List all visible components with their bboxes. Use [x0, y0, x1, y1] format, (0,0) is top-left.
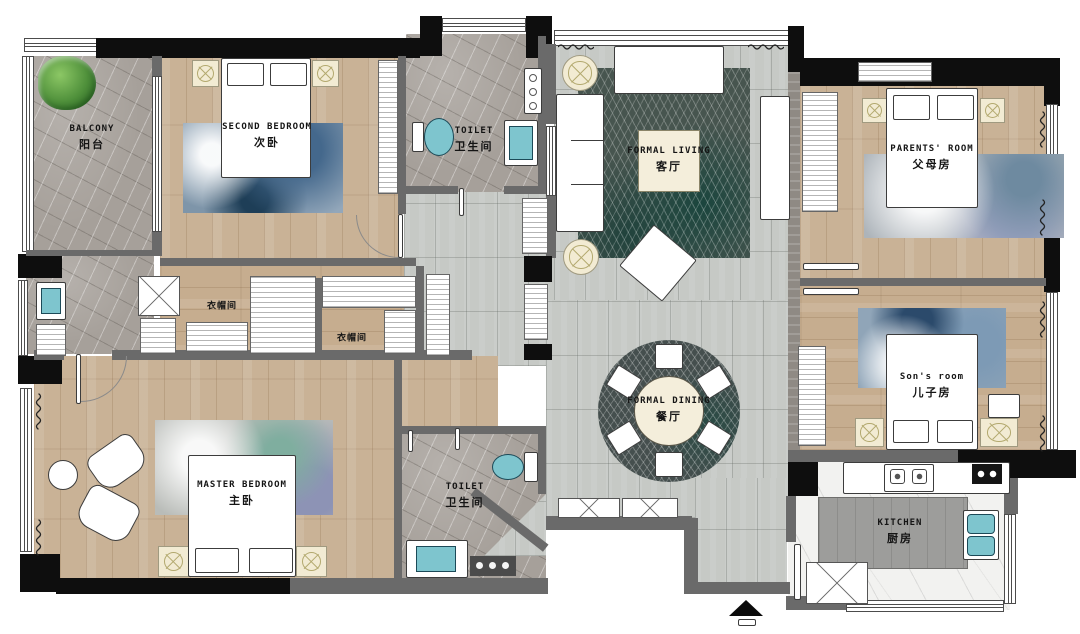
label-en: Son's room — [900, 372, 964, 382]
room-label-master-bedroom: MASTER BEDROOM 主卧 — [197, 480, 287, 508]
window — [846, 600, 1004, 612]
toilet-tank — [524, 452, 538, 482]
burner-icon — [890, 469, 905, 484]
nightstand — [980, 98, 1005, 123]
room-label-sons-room: Son's room 儿子房 — [900, 372, 964, 400]
nightstand — [855, 418, 884, 447]
pillow — [937, 95, 974, 120]
wall-segment — [416, 266, 424, 358]
curtain-icon — [1035, 302, 1054, 338]
column — [958, 450, 1030, 462]
wall-segment — [788, 450, 958, 462]
sink-icon — [416, 546, 456, 572]
label-zh: 卫生间 — [446, 494, 485, 510]
wall-segment — [26, 250, 154, 256]
label-zh: 衣帽间 — [337, 331, 367, 344]
room-label-kitchen: KITCHEN 厨房 — [878, 518, 923, 546]
wall-segment — [290, 578, 548, 594]
switch-panel — [972, 464, 1002, 484]
sink-basin-icon — [967, 514, 995, 534]
cloakroom-cabinet — [140, 318, 176, 354]
shaft — [138, 276, 180, 316]
kitchen-entry-door-leaf — [794, 544, 801, 600]
pillow — [270, 63, 307, 86]
column — [420, 16, 442, 56]
parents-room-door-leaf — [803, 263, 859, 270]
wall-segment — [152, 56, 162, 76]
label-zh: 儿子房 — [900, 384, 964, 400]
utility-sink-icon — [41, 288, 61, 314]
label-en: KITCHEN — [878, 518, 923, 528]
window — [442, 18, 526, 32]
toilet-icon — [492, 454, 524, 480]
wall-segment — [546, 516, 692, 530]
nightstand — [312, 60, 339, 87]
sons-wardrobe — [798, 346, 826, 446]
room-label-toilet-upper: TOILET 卫生间 — [455, 126, 494, 154]
column — [18, 254, 62, 278]
wall-segment — [538, 426, 546, 494]
nightstand — [192, 60, 219, 87]
sink-basin-icon — [967, 536, 995, 556]
room-label-cloakroom-right: 衣帽间 — [337, 329, 367, 344]
column — [1044, 58, 1060, 106]
pillow — [893, 420, 929, 443]
cabinet-knob — [529, 102, 537, 110]
pillow — [195, 548, 239, 573]
label-zh: 餐厅 — [627, 408, 710, 424]
nightstand — [980, 418, 1018, 447]
second-bedroom-door-leaf — [398, 214, 403, 258]
curtain-icon — [31, 520, 50, 556]
side-table — [562, 55, 598, 91]
wall-segment — [684, 518, 698, 588]
knob — [489, 562, 496, 569]
room-label-formal-living: FORMAL LIVING 客厅 — [627, 146, 710, 174]
cloakroom-wardrobe — [250, 276, 316, 354]
toilet-lower-door-leaf2 — [455, 428, 460, 450]
shoe-cabinet — [558, 498, 620, 518]
room-label-parents-room: PARENTS' ROOM 父母房 — [890, 144, 973, 172]
master-bedroom-door-leaf — [76, 354, 81, 404]
wall-segment — [786, 496, 796, 542]
window — [1004, 514, 1016, 604]
small-round-table — [48, 460, 78, 490]
label-en: FORMAL LIVING — [627, 146, 710, 156]
wall-segment — [406, 186, 458, 194]
wall-segment — [546, 44, 556, 124]
label-en: BALCONY — [70, 124, 115, 134]
sofa — [556, 94, 604, 232]
room-label-toilet-lower: TOILET 卫生间 — [446, 482, 485, 510]
fridge — [806, 562, 868, 604]
hallway-cabinet — [524, 284, 548, 340]
label-zh: 卫生间 — [455, 138, 494, 154]
curtain-icon — [31, 394, 50, 430]
column — [56, 578, 290, 594]
window — [546, 126, 556, 196]
tv-console — [760, 96, 790, 220]
room-label-second-bedroom: SECOND BEDROOM 次卧 — [222, 122, 312, 150]
toilet-lower-door-leaf — [408, 430, 413, 452]
label-zh: 客厅 — [627, 158, 710, 174]
column — [20, 554, 60, 592]
window — [22, 56, 34, 252]
burner-icon — [912, 469, 927, 484]
dining-chair — [655, 452, 683, 477]
room-label-balcony: BALCONY 阳台 — [70, 124, 115, 152]
window — [858, 62, 932, 82]
column — [96, 38, 420, 58]
curtain-icon — [1035, 112, 1054, 148]
washer — [36, 324, 66, 356]
wall-segment — [160, 258, 416, 266]
toilet-tank — [412, 122, 424, 152]
cabinet-knob — [529, 88, 537, 96]
label-zh: 父母房 — [890, 156, 973, 172]
cabinet-knob — [529, 74, 537, 82]
column — [18, 356, 62, 384]
pillow — [249, 548, 293, 573]
cloakroom-wardrobe — [322, 276, 416, 308]
knob — [502, 562, 509, 569]
label-zh: 厨房 — [878, 530, 923, 546]
hallway-cabinet — [522, 198, 548, 254]
sons-room-door-leaf — [803, 288, 859, 295]
nightstand — [862, 98, 887, 123]
room-label-formal-dining: FORMAL DINING 餐厅 — [627, 396, 710, 424]
window — [24, 38, 98, 52]
label-zh: 阳台 — [70, 136, 115, 152]
cloakroom-wardrobe — [186, 322, 248, 352]
nightstand — [296, 546, 327, 577]
toilet-icon — [424, 118, 454, 156]
entry-step — [738, 619, 756, 626]
second-bedroom-wardrobe — [378, 60, 398, 194]
column — [524, 256, 552, 282]
curtain-icon — [1035, 200, 1054, 236]
label-zh: 主卧 — [197, 492, 287, 508]
parents-wardrobe — [802, 92, 838, 212]
wall-segment — [538, 36, 546, 192]
shoe-cabinet — [622, 498, 678, 518]
dining-chair — [655, 344, 683, 369]
sink-icon — [509, 126, 533, 160]
column — [524, 344, 552, 360]
label-en: TOILET — [455, 126, 494, 136]
label-zh: 衣帽间 — [207, 299, 237, 312]
floor-plan: BALCONY 阳台 SECOND BEDROOM 次卧 TOILET 卫生间 … — [0, 0, 1080, 634]
wall-segment — [396, 426, 546, 434]
balcony-sliding-door — [152, 76, 162, 232]
pillow — [227, 63, 264, 86]
desk — [988, 394, 1020, 418]
room-label-cloakroom-left: 衣帽间 — [207, 297, 237, 312]
entry-foyer-floor — [695, 478, 787, 584]
wall-segment — [394, 360, 402, 592]
side-table — [563, 239, 599, 275]
curtain-icon — [1035, 416, 1054, 452]
wall-segment — [684, 582, 790, 594]
label-en: TOILET — [446, 482, 485, 492]
hallway-cabinet — [426, 274, 450, 356]
column — [1044, 236, 1060, 292]
plant-icon — [38, 56, 96, 110]
daybed — [614, 46, 724, 94]
pillow — [937, 420, 973, 443]
curtain-icon — [558, 36, 594, 55]
label-en: MASTER BEDROOM — [197, 480, 287, 490]
entry-arrow-icon — [729, 600, 763, 616]
cloakroom-wardrobe — [384, 310, 416, 354]
toilet-upper-floor — [406, 34, 542, 192]
wall-segment — [398, 56, 406, 214]
nightstand — [158, 546, 189, 577]
knob — [476, 562, 483, 569]
label-en: FORMAL DINING — [627, 396, 710, 406]
curtain-icon — [748, 36, 784, 55]
label-en: PARENTS' ROOM — [890, 144, 973, 154]
label-en: SECOND BEDROOM — [222, 122, 312, 132]
toilet-upper-door-leaf — [459, 188, 464, 216]
wall-segment — [800, 278, 1046, 286]
pillow — [893, 95, 930, 120]
label-zh: 次卧 — [222, 134, 312, 150]
window — [18, 280, 28, 356]
